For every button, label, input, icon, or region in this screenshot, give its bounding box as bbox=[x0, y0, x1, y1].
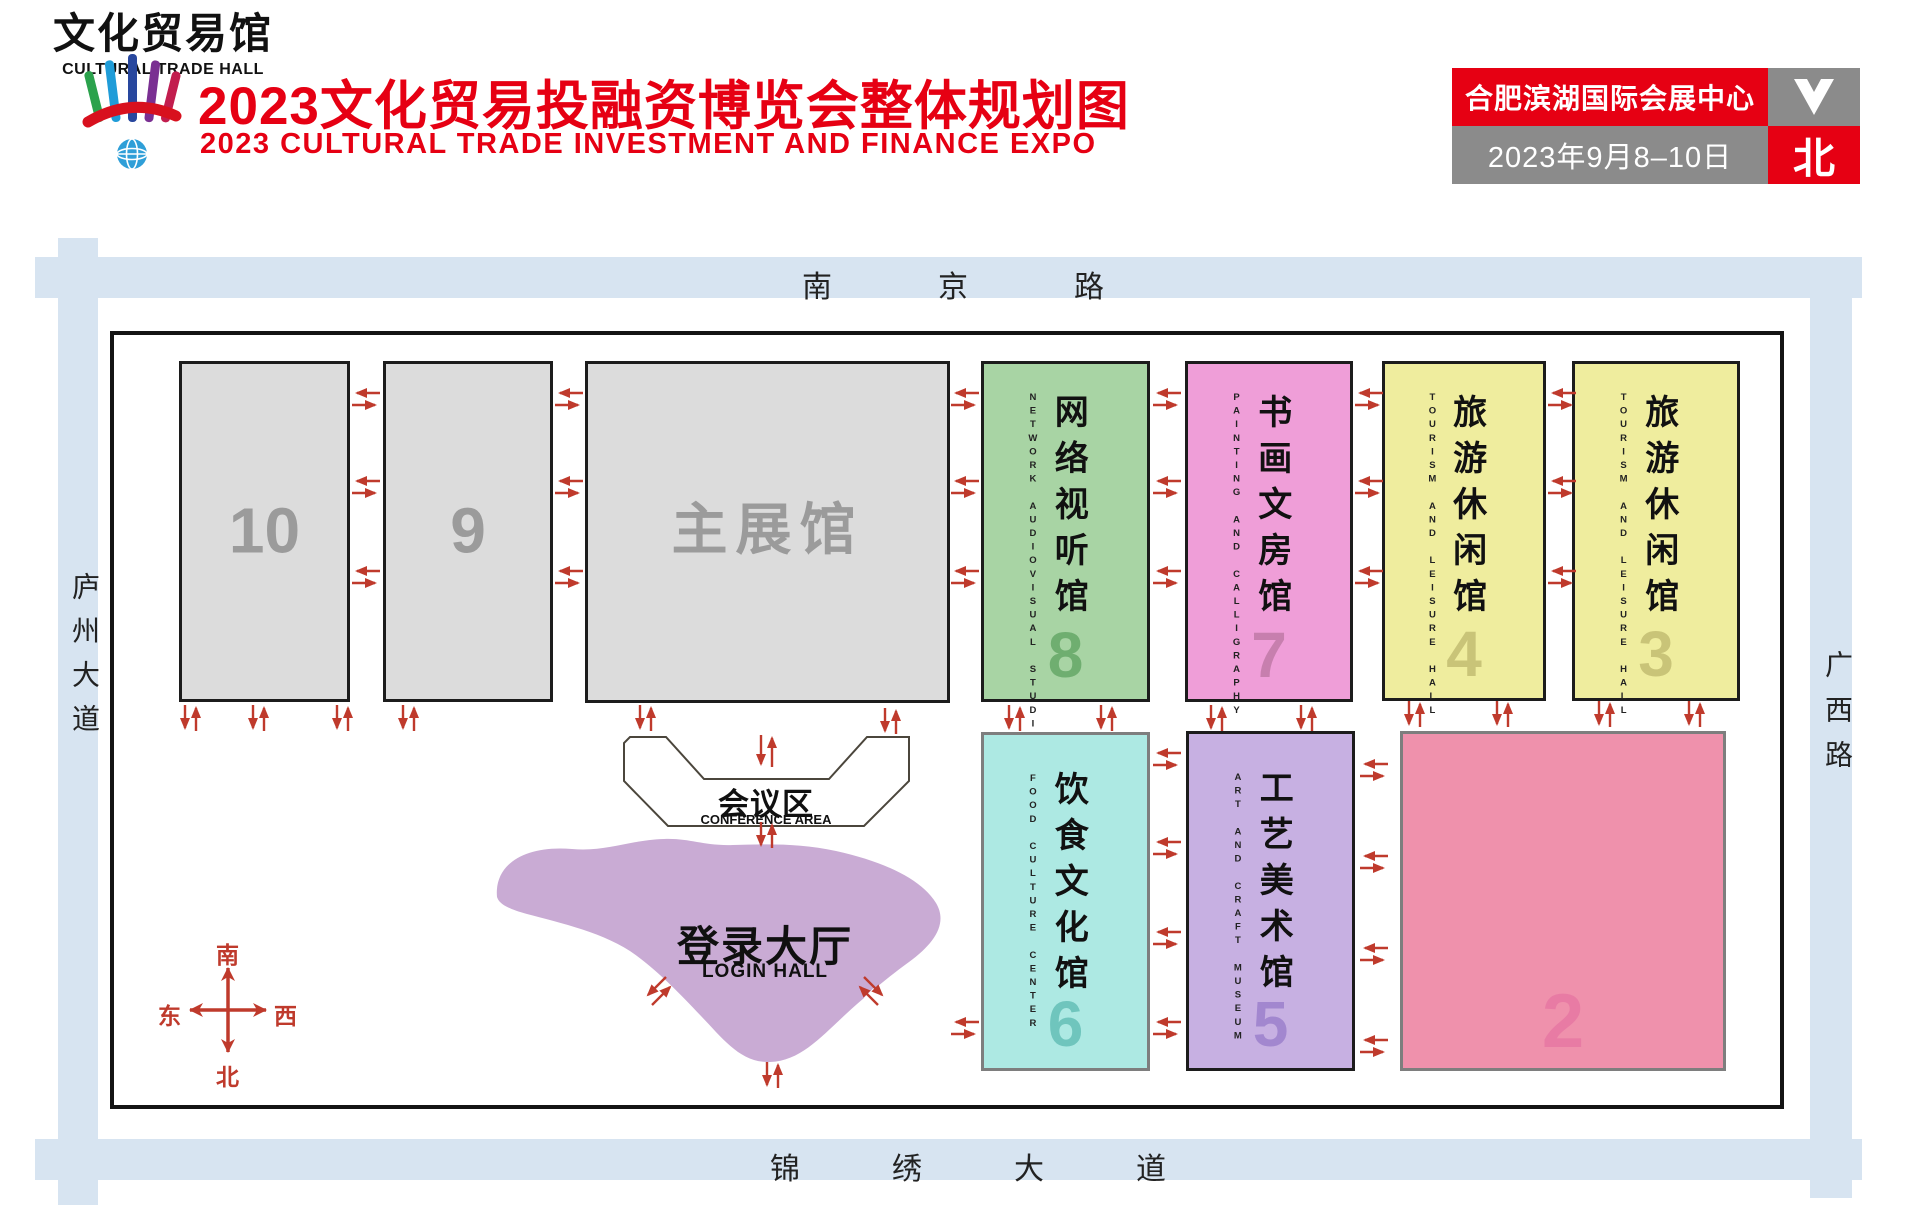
hall-8-number: 8 bbox=[984, 623, 1147, 687]
compass-east-label: 东 bbox=[158, 997, 181, 1031]
hall-5-label-cn: 工艺美术馆 bbox=[1249, 770, 1298, 1000]
road-label-jinxiu: 锦绣大道 bbox=[770, 1144, 1258, 1188]
login-hall-label-en: LOGIN HALL bbox=[640, 961, 890, 983]
hall-3-tourism-leisure: TOURISM AND LEISURE HALL 旅游休闲馆 3 bbox=[1572, 361, 1740, 701]
hall-3-label-cn: 旅游休闲馆 bbox=[1635, 394, 1684, 624]
road-label-guangxi: 广西路 bbox=[1817, 650, 1857, 785]
hall-7-painting-calligraphy: PAINTING AND CALLIGRAPHY LIBRARY 书画文房馆 7 bbox=[1185, 361, 1353, 702]
hall-3-number: 3 bbox=[1575, 622, 1737, 686]
hall-6-food-culture: FOOD CULTURE CENTER 饮食文化馆 6 bbox=[981, 732, 1150, 1071]
hall-2-cultural-trade: 2 bbox=[1400, 731, 1726, 1071]
main-exhibition-hall: 主展馆 bbox=[585, 361, 950, 703]
north-arrow-icon bbox=[1768, 68, 1860, 126]
page-subtitle: 2023 CULTURAL TRADE INVESTMENT AND FINAN… bbox=[200, 128, 1097, 161]
compass-south-label: 南 bbox=[216, 936, 239, 970]
hall-6-label-cn: 饮食文化馆 bbox=[1044, 771, 1093, 1001]
hall-10-number: 10 bbox=[182, 498, 347, 562]
hall-2-label-cn: 文化贸易馆 bbox=[0, 0, 326, 61]
hall-7-label-cn: 书画文房馆 bbox=[1248, 394, 1297, 624]
hall-8-network-audiovisual: NETWORK AUDIOVISUAL STUDIO 网络视听馆 8 bbox=[981, 361, 1150, 702]
road-label-luzhou: 庐州大道 bbox=[64, 572, 104, 748]
hall-4-label-cn: 旅游休闲馆 bbox=[1443, 394, 1492, 624]
hall-8-label-en: NETWORK AUDIOVISUAL STUDIO bbox=[1027, 392, 1038, 746]
road-label-nanjing: 南京路 bbox=[802, 262, 1210, 306]
hall-8-label-cn: 网络视听馆 bbox=[1044, 394, 1093, 624]
hall-4-tourism-leisure: TOURISM AND LEISURE HALL 旅游休闲馆 4 bbox=[1382, 361, 1546, 701]
compass-north-label: 北 bbox=[216, 1058, 239, 1092]
compass-west-label: 西 bbox=[274, 997, 297, 1031]
event-info-box: 合肥滨湖国际会展中心 2023年9月8–10日 北 bbox=[1452, 68, 1860, 184]
hall-6-number: 6 bbox=[984, 992, 1147, 1056]
main-hall-label: 主展馆 bbox=[672, 485, 864, 566]
venue-name: 合肥滨湖国际会展中心 bbox=[1452, 68, 1768, 126]
hall-4-number: 4 bbox=[1385, 622, 1543, 686]
expo-floorplan-poster: 2023文化贸易投融资博览会整体规划图 2023 CULTURAL TRADE … bbox=[0, 0, 1920, 1226]
north-label: 北 bbox=[1768, 126, 1860, 184]
hall-2-number: 2 bbox=[1403, 984, 1723, 1060]
hall-7-number: 7 bbox=[1188, 623, 1350, 687]
event-dates: 2023年9月8–10日 bbox=[1452, 126, 1768, 184]
hall-10: 10 bbox=[179, 361, 350, 702]
hall-9-number: 9 bbox=[386, 498, 550, 562]
hall-9: 9 bbox=[383, 361, 553, 702]
hall-5-number: 5 bbox=[1189, 992, 1352, 1056]
hall-5-art-craft: ART AND CRAFT MUSEUM 工艺美术馆 5 bbox=[1186, 731, 1355, 1071]
conference-area-label-en: CONFERENCE AREA bbox=[666, 812, 866, 827]
